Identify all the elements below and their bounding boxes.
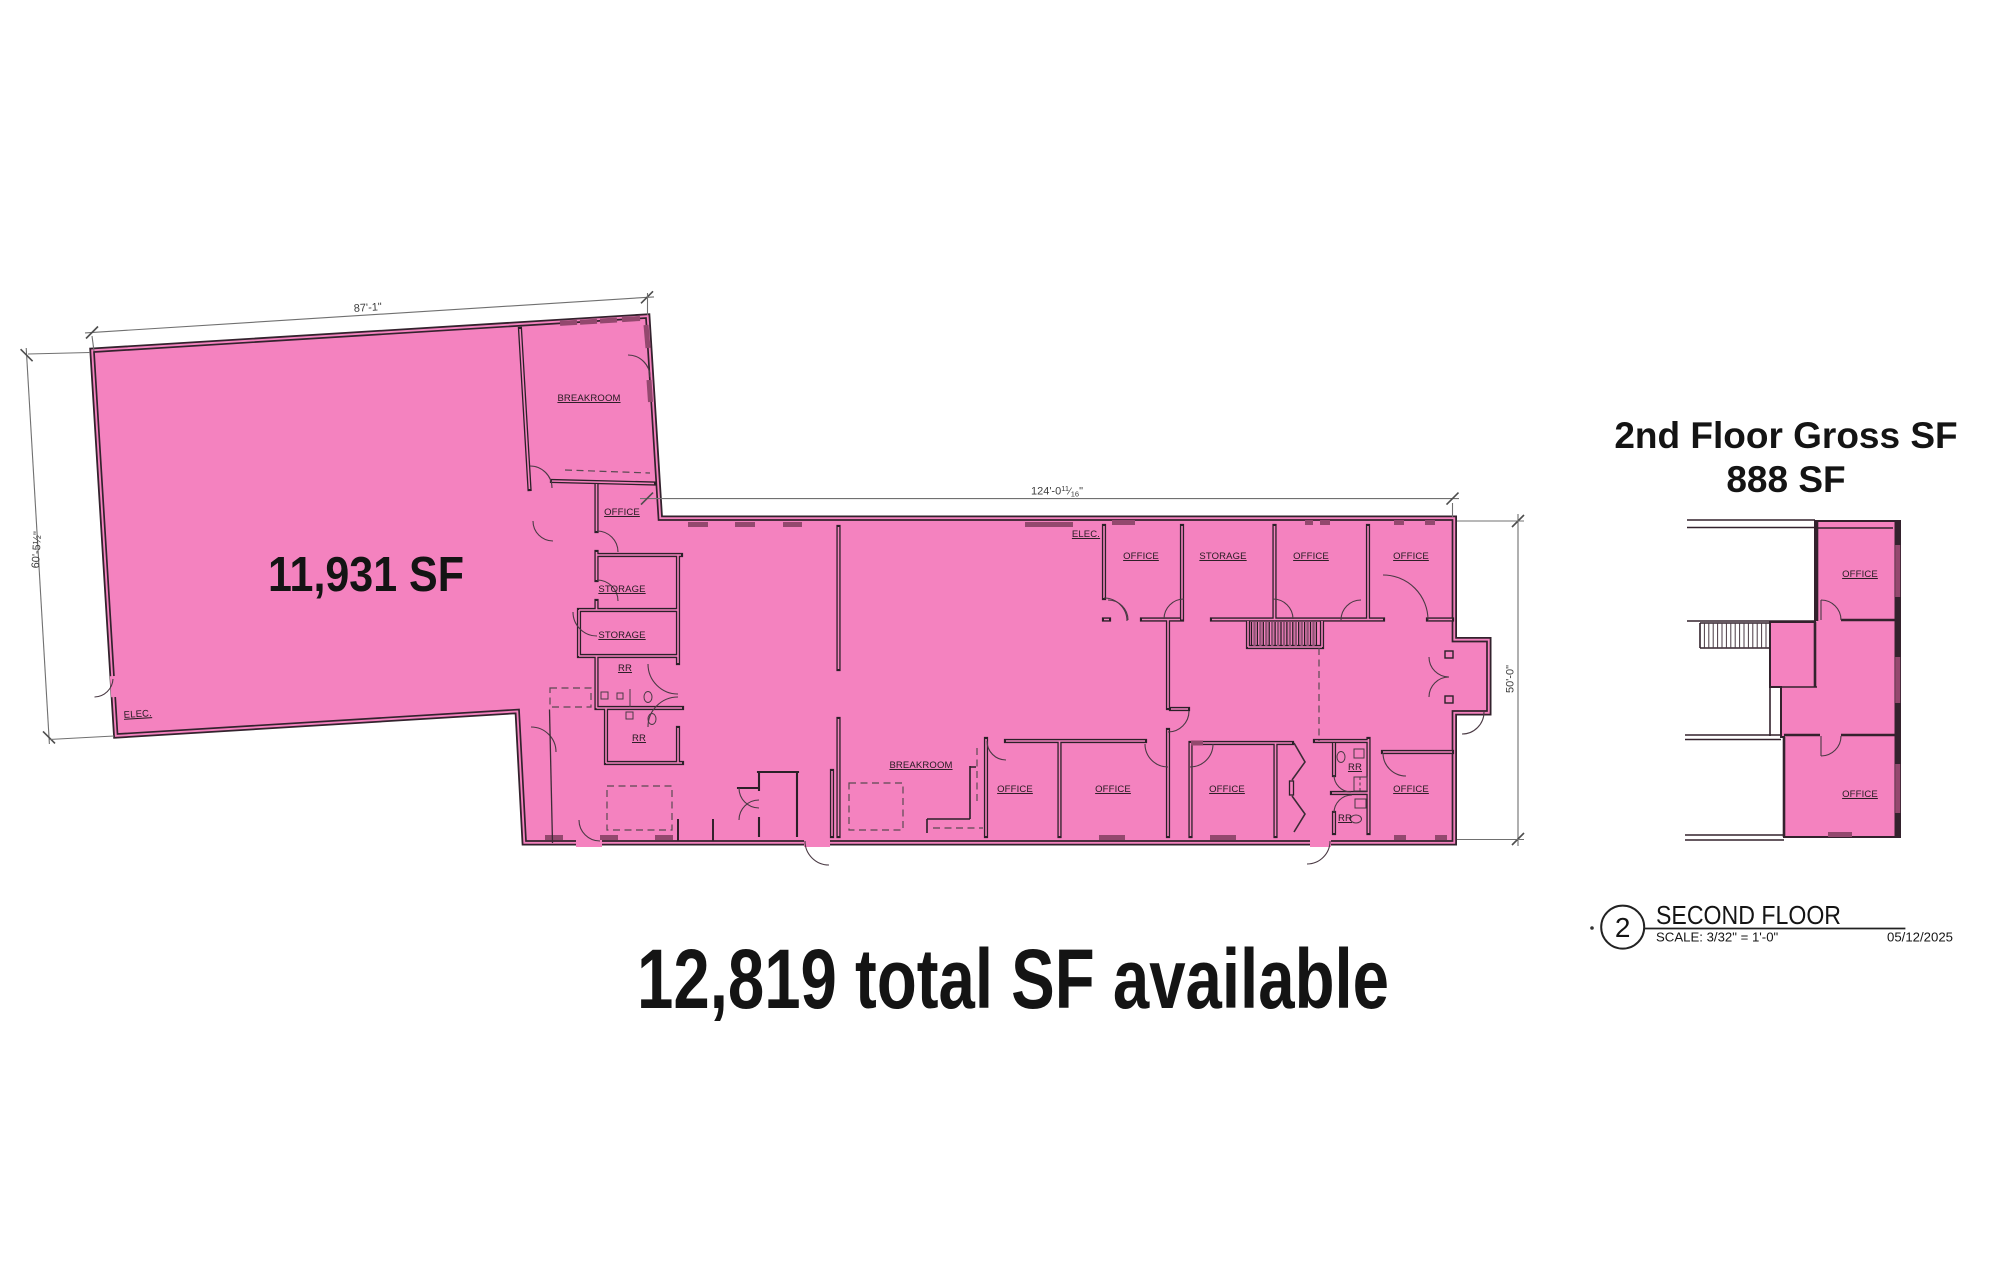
svg-text:SCALE: 3/32" = 1'-0": SCALE: 3/32" = 1'-0" xyxy=(1656,930,1779,945)
svg-text:50'-0": 50'-0" xyxy=(1505,665,1517,693)
svg-text:STORAGE: STORAGE xyxy=(1199,551,1246,562)
svg-text:OFFICE: OFFICE xyxy=(1393,551,1429,562)
svg-text:RR: RR xyxy=(1348,762,1362,773)
svg-text:OFFICE: OFFICE xyxy=(1842,789,1878,800)
svg-text:STORAGE: STORAGE xyxy=(598,630,645,641)
svg-text:OFFICE: OFFICE xyxy=(1123,551,1159,562)
svg-text:OFFICE: OFFICE xyxy=(997,784,1033,795)
svg-text:STORAGE: STORAGE xyxy=(598,584,645,595)
svg-text:OFFICE: OFFICE xyxy=(1393,784,1429,795)
svg-text:2nd Floor Gross SF: 2nd Floor Gross SF xyxy=(1614,415,1957,456)
svg-text:OFFICE: OFFICE xyxy=(604,507,640,518)
svg-text:RR: RR xyxy=(632,733,646,744)
svg-text:12,819 total SF available: 12,819 total SF available xyxy=(637,932,1389,1026)
svg-text:RR: RR xyxy=(1338,813,1352,824)
svg-text:ELEC.: ELEC. xyxy=(1072,529,1100,540)
svg-text:OFFICE: OFFICE xyxy=(1095,784,1131,795)
svg-text:RR: RR xyxy=(618,663,632,674)
svg-text:BREAKROOM: BREAKROOM xyxy=(889,760,952,771)
svg-text:87'-1": 87'-1" xyxy=(353,301,382,315)
svg-text:2: 2 xyxy=(1615,912,1631,943)
svg-text:ELEC.: ELEC. xyxy=(123,708,152,721)
svg-text:05/12/2025: 05/12/2025 xyxy=(1887,930,1953,945)
svg-text:888 SF: 888 SF xyxy=(1726,459,1845,500)
svg-text:SECOND FLOOR: SECOND FLOOR xyxy=(1656,900,1841,930)
svg-text:11,931 SF: 11,931 SF xyxy=(268,548,464,602)
svg-text:60'-5½": 60'-5½" xyxy=(30,531,44,569)
svg-text:OFFICE: OFFICE xyxy=(1842,569,1878,580)
svg-text:BREAKROOM: BREAKROOM xyxy=(557,393,620,404)
svg-text:OFFICE: OFFICE xyxy=(1209,784,1245,795)
svg-text:OFFICE: OFFICE xyxy=(1293,551,1329,562)
